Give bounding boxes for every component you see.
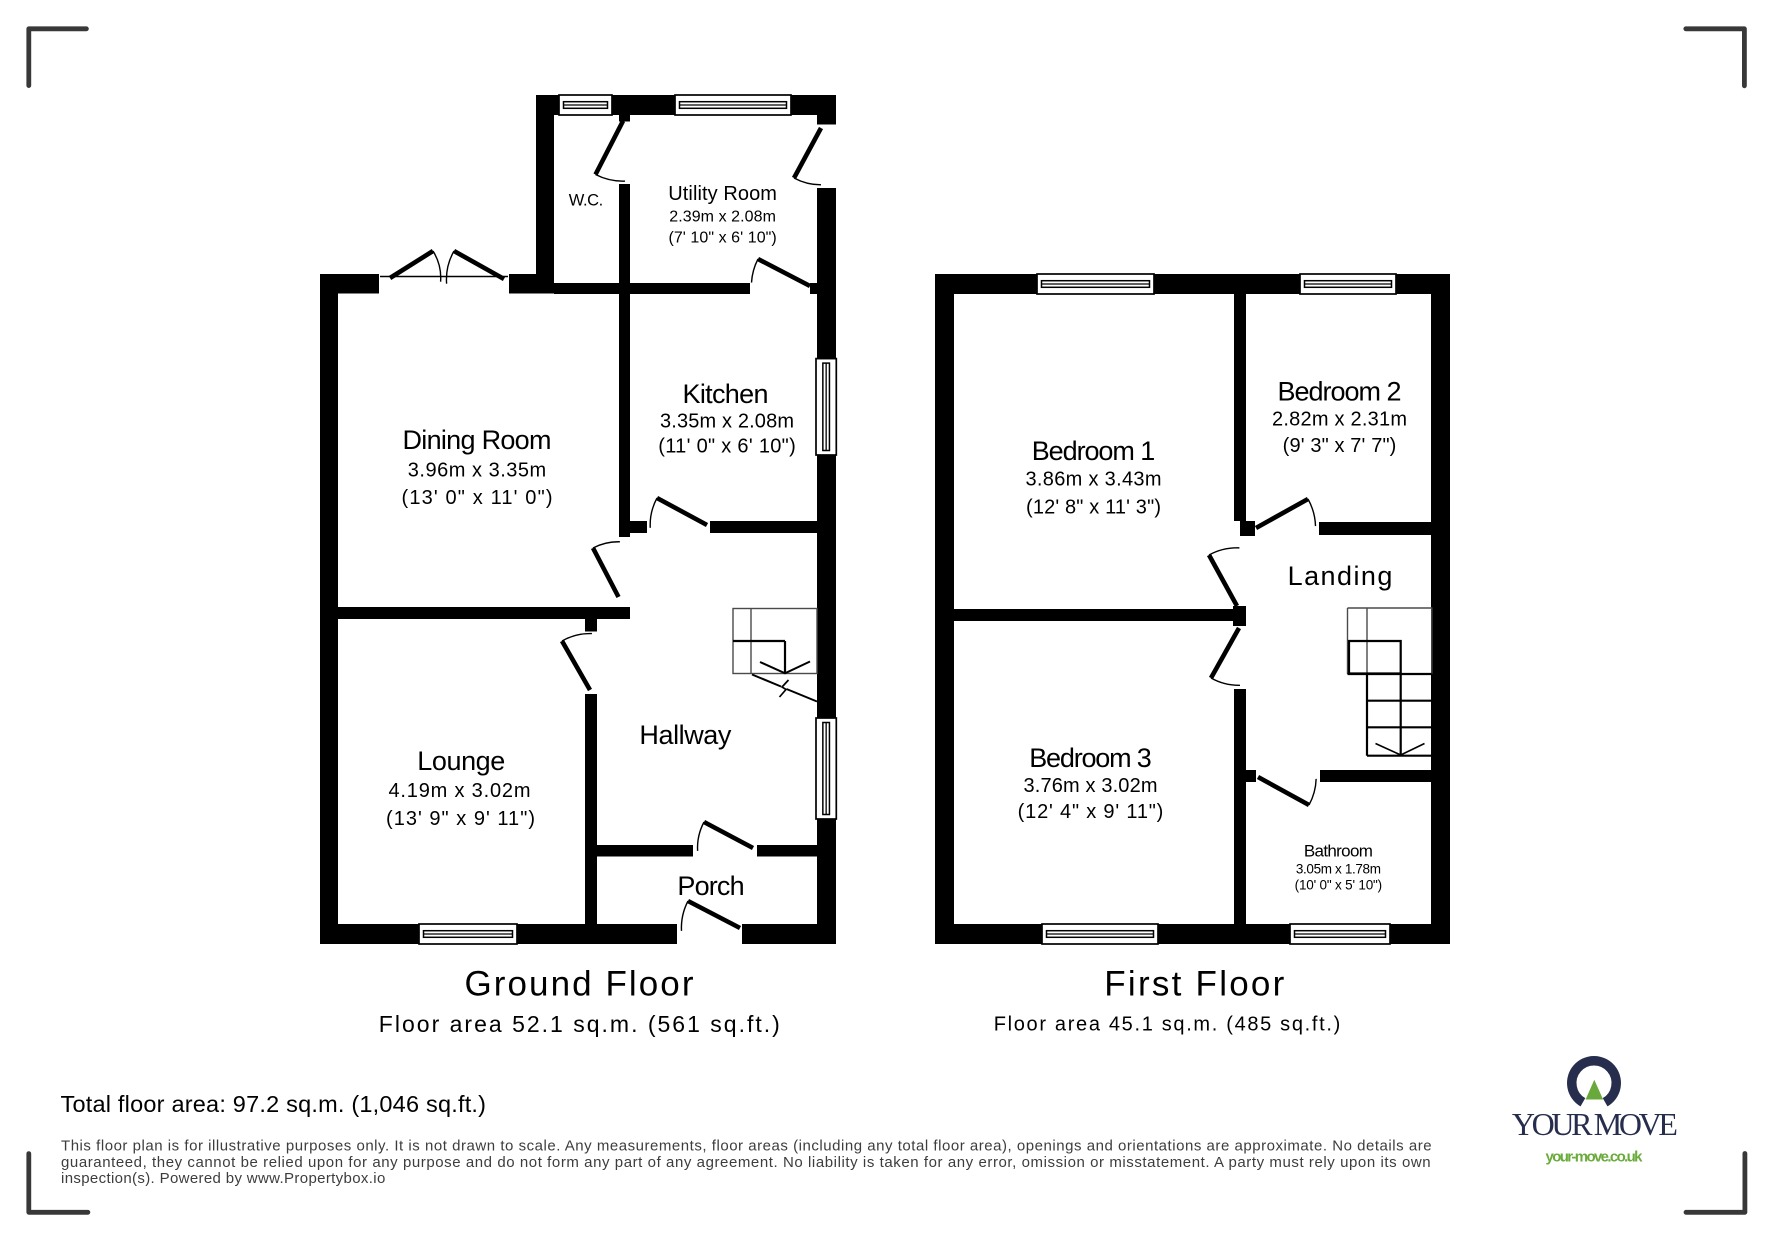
svg-text:3.05m x 1.78m: 3.05m x 1.78m xyxy=(1296,862,1381,877)
svg-text:(11' 0" x 6' 10"): (11' 0" x 6' 10") xyxy=(658,436,796,458)
svg-text:(12' 4" x 9' 11"): (12' 4" x 9' 11") xyxy=(1018,801,1164,823)
svg-text:3.86m x 3.43m: 3.86m x 3.43m xyxy=(1026,469,1162,491)
svg-text:Kitchen: Kitchen xyxy=(683,379,769,409)
svg-text:Bedroom 2: Bedroom 2 xyxy=(1278,377,1402,407)
svg-text:Ground Floor: Ground Floor xyxy=(465,965,694,1004)
svg-text:(10' 0" x 5' 10"): (10' 0" x 5' 10") xyxy=(1295,878,1383,893)
svg-text:Bedroom 1: Bedroom 1 xyxy=(1032,436,1156,466)
svg-text:2.39m x 2.08m: 2.39m x 2.08m xyxy=(669,208,776,225)
svg-text:(9' 3" x 7' 7"): (9' 3" x 7' 7") xyxy=(1283,435,1397,457)
svg-text:Floor area 52.1 sq.m. (561 sq.: Floor area 52.1 sq.m. (561 sq.ft.) xyxy=(379,1011,780,1037)
svg-text:4.19m x 3.02m: 4.19m x 3.02m xyxy=(389,780,531,802)
svg-text:Utility Room: Utility Room xyxy=(668,183,777,205)
svg-text:guaranteed, they cannot be rel: guaranteed, they cannot be relied upon f… xyxy=(61,1154,1431,1171)
svg-text:First Floor: First Floor xyxy=(1104,965,1284,1004)
svg-text:2.82m x 2.31m: 2.82m x 2.31m xyxy=(1272,409,1407,431)
svg-text:(12' 8" x 11' 3"): (12' 8" x 11' 3") xyxy=(1026,497,1161,519)
svg-text:(13' 9" x 9' 11"): (13' 9" x 9' 11") xyxy=(386,808,535,830)
svg-text:Total floor area: 97.2 sq.m. (: Total floor area: 97.2 sq.m. (1,046 sq.f… xyxy=(61,1091,487,1117)
svg-text:Porch: Porch xyxy=(677,871,744,901)
svg-text:Bedroom 3: Bedroom 3 xyxy=(1029,743,1152,773)
svg-text:(13' 0" x 11' 0"): (13' 0" x 11' 0") xyxy=(402,487,553,509)
svg-text:This floor plan is for illustr: This floor plan is for illustrative purp… xyxy=(61,1138,1432,1155)
svg-text:3.96m x 3.35m: 3.96m x 3.35m xyxy=(408,460,546,482)
svg-text:3.35m x 2.08m: 3.35m x 2.08m xyxy=(660,411,794,433)
svg-text:W.C.: W.C. xyxy=(569,192,604,210)
svg-text:3.76m x 3.02m: 3.76m x 3.02m xyxy=(1024,775,1158,797)
svg-text:Hallway: Hallway xyxy=(639,720,732,750)
svg-text:YOUR MOVE: YOUR MOVE xyxy=(1512,1106,1678,1142)
svg-text:Lounge: Lounge xyxy=(417,746,505,776)
svg-text:Floor area 45.1 sq.m. (485 sq.: Floor area 45.1 sq.m. (485 sq.ft.) xyxy=(994,1014,1341,1036)
svg-text:your-move.co.uk: your-move.co.uk xyxy=(1546,1148,1644,1165)
svg-text:Bathroom: Bathroom xyxy=(1304,842,1373,861)
svg-text:(7' 10" x 6' 10"): (7' 10" x 6' 10") xyxy=(668,229,776,246)
svg-text:Dining Room: Dining Room xyxy=(403,425,552,455)
svg-text:inspection(s). Powered by www.: inspection(s). Powered by www.Propertybo… xyxy=(61,1170,385,1187)
svg-text:Landing: Landing xyxy=(1288,561,1393,591)
